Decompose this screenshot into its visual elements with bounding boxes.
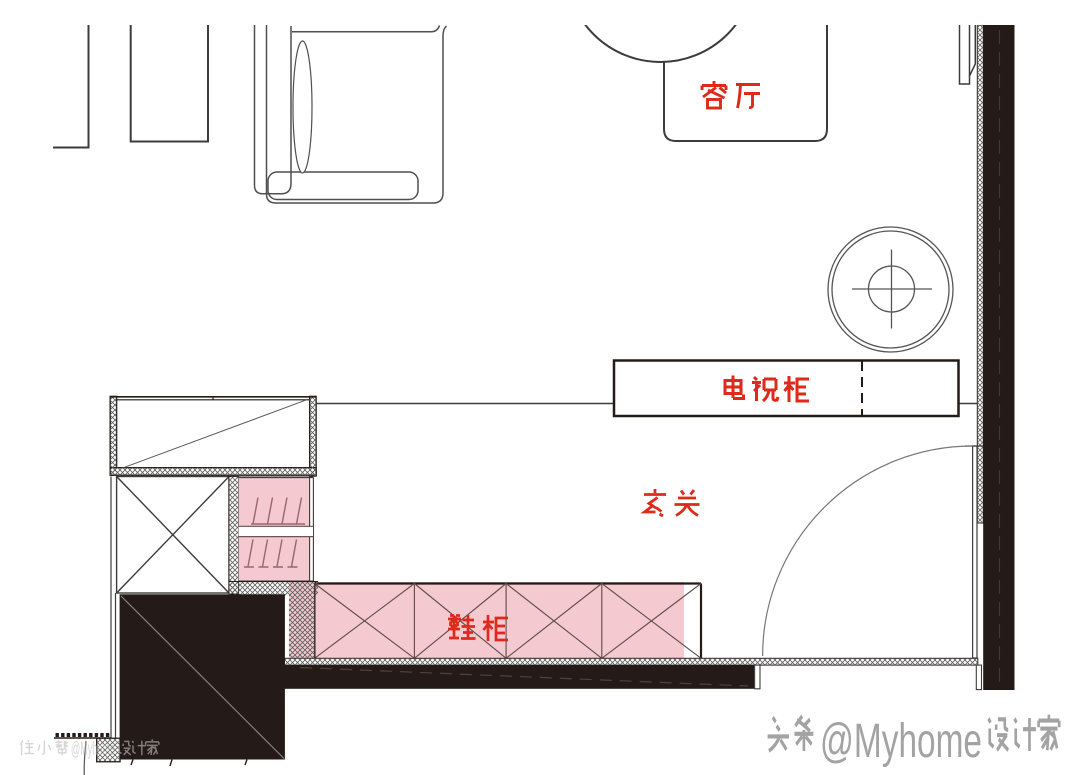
svg-text:@Myhome: @Myhome bbox=[820, 715, 982, 768]
svg-text:@Myhome: @Myhome bbox=[71, 739, 115, 760]
